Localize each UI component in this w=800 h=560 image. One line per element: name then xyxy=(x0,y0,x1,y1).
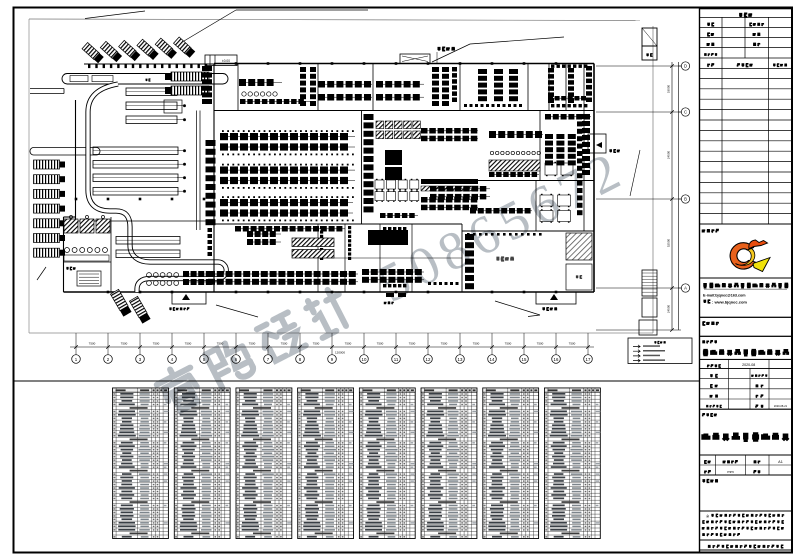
svg-text:7500: 7500 xyxy=(505,342,512,346)
svg-text:7500: 7500 xyxy=(185,342,192,346)
svg-text:D: D xyxy=(684,64,687,69)
svg-text:7500: 7500 xyxy=(569,342,576,346)
svg-text:A: A xyxy=(684,286,687,291)
svg-text:E-mail:bjqnec@163.com: E-mail:bjqnec@163.com xyxy=(703,294,746,298)
svg-text:12: 12 xyxy=(426,357,431,362)
svg-text:7500: 7500 xyxy=(537,342,544,346)
svg-text:15: 15 xyxy=(522,357,527,362)
svg-text:24500: 24500 xyxy=(667,304,671,313)
svg-text:7500: 7500 xyxy=(473,342,480,346)
svg-text:7500: 7500 xyxy=(441,342,448,346)
svg-text:2020-08-21: 2020-08-21 xyxy=(774,404,788,408)
svg-text:7500: 7500 xyxy=(89,342,96,346)
svg-text:14: 14 xyxy=(490,357,495,362)
svg-text:10: 10 xyxy=(362,357,367,362)
svg-text:7500: 7500 xyxy=(121,342,128,346)
svg-text:11: 11 xyxy=(394,357,399,362)
svg-text:2020-08: 2020-08 xyxy=(742,363,755,367)
svg-text:7500: 7500 xyxy=(345,342,352,346)
svg-text:7500: 7500 xyxy=(409,342,416,346)
svg-text:7500: 7500 xyxy=(249,342,256,346)
svg-text:7500: 7500 xyxy=(281,342,288,346)
svg-text:: www.bjqnec.com: : www.bjqnec.com xyxy=(712,300,747,305)
svg-text:±0.00: ±0.00 xyxy=(222,59,230,63)
svg-text:7500: 7500 xyxy=(153,342,160,346)
svg-text:mm: mm xyxy=(727,470,733,474)
svg-text:7500: 7500 xyxy=(377,342,384,346)
svg-text:24500: 24500 xyxy=(667,150,671,159)
svg-text:120000: 120000 xyxy=(335,351,345,355)
svg-text:16: 16 xyxy=(554,357,559,362)
svg-text:B: B xyxy=(684,197,687,202)
svg-text:C: C xyxy=(684,110,687,115)
svg-text:18000: 18000 xyxy=(667,84,671,93)
svg-text:17: 17 xyxy=(586,357,591,362)
svg-text:52500: 52500 xyxy=(667,238,671,247)
svg-text:13: 13 xyxy=(458,357,463,362)
svg-text:A1: A1 xyxy=(778,460,783,464)
svg-text:7500: 7500 xyxy=(313,342,320,346)
svg-text:※: ※ xyxy=(706,514,709,519)
